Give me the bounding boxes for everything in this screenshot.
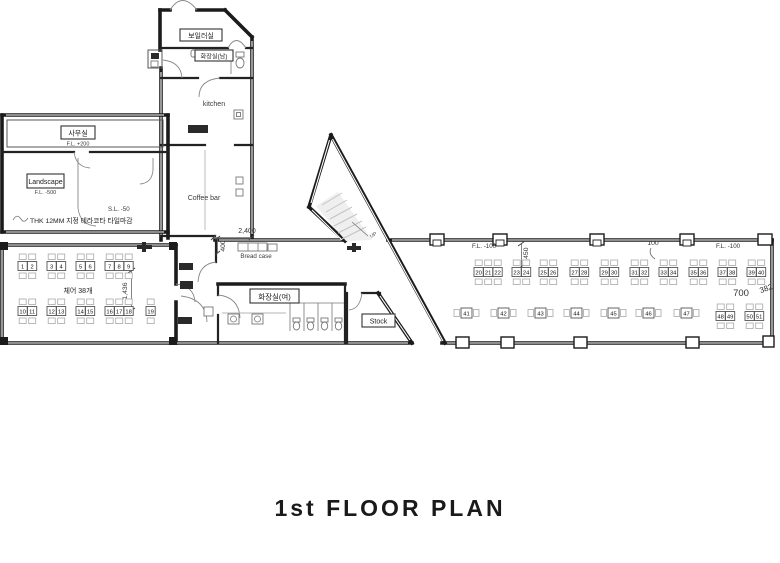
floor-level-right-label: F.L. -100 (716, 243, 741, 250)
table-number: 12 (48, 310, 54, 316)
table-group: 42 (491, 308, 516, 318)
table-number: 9 (127, 265, 130, 271)
womens-restroom-label: 화장실(여) (258, 292, 291, 302)
table-number: 29 (601, 271, 607, 277)
table-group: 1415 (76, 299, 95, 324)
table-number: 47 (683, 311, 689, 317)
table-group: 3738 (718, 260, 737, 285)
kitchen-label: kitchen (203, 101, 225, 108)
table-group: 3940 (747, 260, 766, 285)
table-number: 8 (117, 265, 120, 271)
table-number: 24 (523, 271, 530, 277)
table-number: 21 (485, 271, 491, 277)
table-number: 27 (571, 271, 577, 277)
table-number: 39 (748, 271, 754, 277)
mens-restroom-label: 화장실(남) (201, 53, 228, 61)
table-group: 46 (636, 308, 661, 318)
table-group: 789 (105, 254, 133, 279)
table-group: 2930 (600, 260, 619, 285)
table-number: 14 (77, 310, 84, 316)
table-number: 5 (79, 265, 82, 271)
table-number: 51 (756, 315, 762, 321)
table-number: 49 (727, 315, 733, 321)
table-number: 42 (500, 311, 506, 317)
table-number: 30 (611, 271, 617, 277)
table-number: 33 (660, 271, 666, 277)
boiler-room-label: 보일러실 (188, 31, 214, 40)
table-number: 46 (645, 311, 651, 317)
table-group: 47 (674, 308, 699, 318)
floor-plan-page: 보일러실 화장실(남) kitchen Coffee bar Bread cas… (0, 0, 780, 563)
table-number: 32 (641, 271, 647, 277)
table-group: 161718 (105, 299, 133, 324)
table-group: 45 (601, 308, 626, 318)
table-number: 20 (475, 271, 481, 277)
table-number: 44 (573, 311, 580, 317)
coffee-bar-label: Coffee bar (188, 195, 221, 202)
table-number: 1 (21, 265, 24, 271)
dim-400: 400 (220, 240, 227, 252)
table-number: 3 (50, 265, 53, 271)
table-number: 2 (30, 265, 33, 271)
table-number: 16 (106, 310, 112, 316)
table-number: 37 (719, 271, 725, 277)
table-number: 41 (463, 311, 469, 317)
table-group: 1213 (47, 299, 66, 324)
table-number: 45 (610, 311, 616, 317)
window-posts (0, 234, 774, 348)
table-number: 23 (513, 271, 519, 277)
table-group: 12 (18, 254, 37, 279)
table-group: 1011 (18, 299, 37, 324)
page-title: 1st FLOOR PLAN (274, 495, 505, 521)
table-group: 3132 (630, 260, 649, 285)
dim-700: 700 (733, 288, 749, 299)
table-number: 7 (108, 265, 111, 271)
table-group: 41 (454, 308, 479, 318)
table-number: 34 (670, 271, 677, 277)
table-number: 19 (147, 310, 153, 316)
table-group: 34 (47, 254, 66, 279)
table-group: 5051 (745, 304, 764, 329)
chair-count-label: 체어 38개 (63, 286, 92, 295)
dim-100: 100 (647, 240, 659, 247)
table-number: 18 (125, 310, 131, 316)
table-group: 56 (76, 254, 95, 279)
table-number: 6 (88, 265, 91, 271)
table-number: 28 (581, 271, 587, 277)
table-number: 25 (540, 271, 546, 277)
table-number: 50 (746, 315, 752, 321)
table-group: 2526 (539, 260, 558, 285)
table-number: 22 (494, 271, 500, 277)
table-number: 38 (729, 271, 735, 277)
dim-1436: 1,436 (122, 282, 129, 299)
dim-2400: 2,400 (238, 228, 256, 235)
table-group: 3334 (659, 260, 678, 285)
table-number: 10 (19, 310, 25, 316)
floor-level-left-label: F.L. -100 (472, 243, 497, 250)
table-number: 17 (116, 310, 122, 316)
table-number: 13 (58, 310, 64, 316)
table-group: 43 (528, 308, 553, 318)
finish-note-label: THK 12MM 지정 테라코타 타일마감 (30, 216, 133, 225)
office-level-label: F.L. +200 (67, 142, 90, 148)
table-number: 36 (700, 271, 706, 277)
bread-case-label: Bread case (240, 253, 272, 260)
table-number: 35 (690, 271, 696, 277)
slab-level-label: S.L. -50 (108, 206, 130, 213)
landscape-level-label: F.L. -500 (35, 190, 56, 196)
table-number: 40 (758, 271, 764, 277)
table-group: 44 (564, 308, 589, 318)
office-label: 사무실 (68, 129, 87, 138)
table-number: 11 (29, 310, 35, 316)
table-group: 202122 (474, 260, 502, 285)
table-group: 3536 (689, 260, 708, 285)
table-group: 2728 (570, 260, 589, 285)
table-number: 43 (537, 311, 543, 317)
table-number: 48 (717, 315, 723, 321)
landscape-label: Landscape (28, 179, 62, 186)
table-number: 31 (631, 271, 637, 277)
walls (2, 10, 772, 343)
stair-up-label: UP (369, 231, 379, 240)
table-number: 15 (87, 310, 93, 316)
stock-label: Stock (370, 319, 388, 326)
table-group: 19 (146, 299, 155, 324)
table-number: 26 (550, 271, 556, 277)
table-group: 4849 (716, 304, 735, 329)
floor-plan-svg: 보일러실 화장실(남) kitchen Coffee bar Bread cas… (0, 0, 780, 563)
